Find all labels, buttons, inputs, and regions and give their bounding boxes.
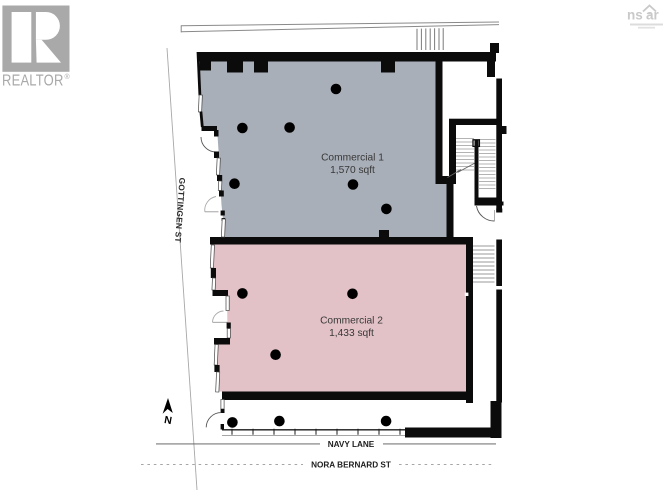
svg-text:ar: ar xyxy=(646,8,660,23)
svg-text:NAVY LANE: NAVY LANE xyxy=(328,440,375,449)
svg-text:REALTOR: REALTOR xyxy=(2,73,64,90)
svg-text:1,433 sqft: 1,433 sqft xyxy=(329,328,374,339)
svg-text:Commercial 1: Commercial 1 xyxy=(321,153,384,164)
svg-text:ns: ns xyxy=(627,8,643,23)
svg-text:1,570 sqft: 1,570 sqft xyxy=(330,165,375,176)
svg-text:®: ® xyxy=(65,73,71,81)
svg-text:NORA BERNARD ST: NORA BERNARD ST xyxy=(311,461,391,470)
svg-text:Commercial 2: Commercial 2 xyxy=(320,316,383,327)
